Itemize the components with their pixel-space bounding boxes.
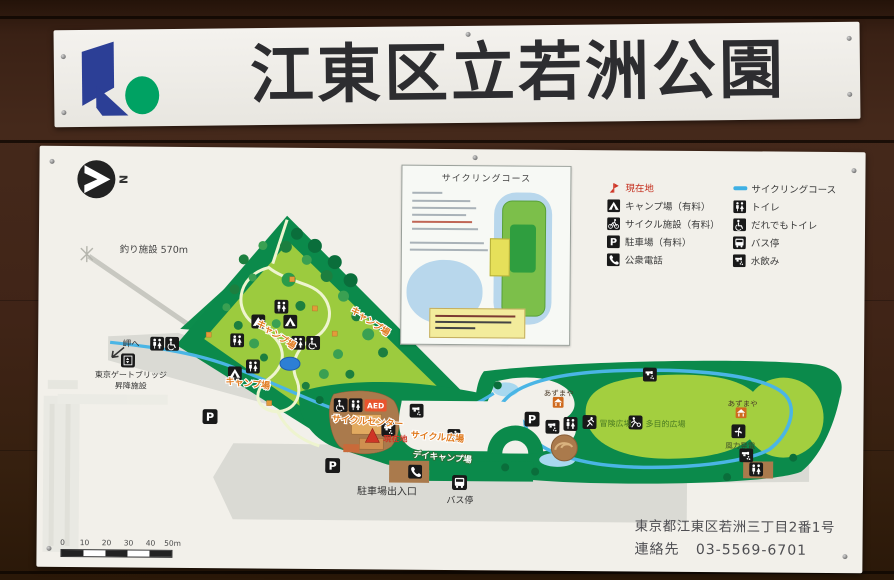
scale-tick: 0 [60, 538, 65, 547]
legend-label: 水飲み [751, 253, 780, 267]
current-location-label: 現在地 [383, 433, 407, 443]
azumaya-east-label: あずまや [728, 398, 758, 408]
campsite-icon [607, 199, 620, 212]
park-title: 江東区立若洲公園 [250, 29, 787, 119]
scale-tick: 30 [124, 538, 134, 547]
contact-line: 連絡先 03-5569-6701 [634, 538, 834, 560]
legend-row: サイクリングコース [733, 179, 859, 198]
scale-bar-segments [60, 549, 172, 558]
legend-row: 水飲み [733, 251, 859, 270]
water-fountain-icon [733, 254, 746, 267]
legend-row: トイレ [733, 197, 859, 216]
inset-cycling-map: サイクリングコース [400, 165, 571, 346]
screw [50, 159, 55, 164]
water-fountain-icon [643, 368, 657, 382]
screw [842, 554, 847, 559]
bus-stop-icon [733, 236, 746, 249]
accessible-toilet-icon [334, 398, 348, 412]
water-fountain-icon [410, 404, 424, 418]
scale-tick: 40 [146, 539, 156, 548]
inset-note [429, 308, 525, 339]
legend-label: 公衆電話 [625, 252, 663, 266]
accessible-toilet-icon [306, 336, 320, 350]
legend-label: 駐車場（有料） [625, 234, 692, 249]
water-fountain-icon [545, 420, 559, 434]
legend-label: バス停 [751, 235, 780, 249]
screw [473, 155, 478, 160]
parking-icon [202, 409, 217, 424]
gate-bridge-label-2: 昇降施設 [115, 380, 147, 390]
screw [466, 32, 471, 37]
inset-title: サイクリングコース [402, 171, 570, 185]
park-sign-photo: 江東区立若洲公園 [0, 0, 894, 580]
legend-label: 現在地 [625, 180, 654, 194]
legend-row: 駐車場（有料） [607, 232, 732, 251]
current-location-icon [607, 181, 620, 194]
cape-label: 岬へ [123, 339, 141, 349]
toilet-icon [733, 200, 746, 213]
parking-entrance-label: 駐車場出入口 [357, 484, 417, 497]
park-map-panel: AED 現在地 釣り施設 570m 岬へ 東京ゲートブリッジ 昇降施設 キャンプ… [36, 146, 865, 573]
toilet-icon [349, 398, 363, 412]
legend-row: バス停 [733, 233, 859, 252]
address-line: 東京都江東区若洲三丁目2番1号 [635, 514, 835, 536]
screw [847, 36, 852, 41]
scale-tick: 50m [164, 539, 181, 548]
screw [61, 54, 66, 59]
screw [851, 168, 856, 173]
screw [847, 92, 852, 97]
legend-label: だれでもトイレ [751, 217, 817, 232]
phone-number: 03-5569-6701 [696, 542, 807, 559]
koto-ward-logo [76, 39, 197, 118]
legend-row: サイクル施設（有料） [607, 214, 732, 233]
toilet-icon [246, 359, 260, 373]
spiral-mound [551, 435, 577, 461]
legend-label: トイレ [751, 199, 780, 213]
gazebo-icon [736, 407, 747, 418]
legend-label: キャンプ場（有料） [625, 198, 710, 213]
legend-row: 公衆電話 [607, 250, 732, 269]
parking-icon [607, 235, 620, 248]
toilet-icon [274, 300, 288, 314]
north-compass-icon: N [75, 156, 137, 202]
scale-tick: 10 [80, 538, 90, 547]
cycling-course-line [733, 186, 747, 190]
azumaya-west-label: あずまや [544, 388, 574, 398]
accessible-toilet-icon [733, 218, 746, 231]
legend-label: サイクリングコース [751, 181, 836, 196]
water-fountain-icon [739, 448, 753, 462]
phone-icon [408, 465, 422, 479]
legend-label: サイクル施設（有料） [625, 216, 720, 231]
elevator-icon [121, 353, 135, 367]
wind-turbine-icon [731, 424, 745, 438]
accessible-toilet-icon [165, 337, 179, 351]
bus-stop-label: バス停 [446, 494, 473, 506]
toilet-icon [749, 462, 763, 476]
campsite-icon [283, 315, 297, 329]
legend-row: 現在地 [607, 178, 732, 197]
gazebo-icon [553, 397, 564, 408]
scale-bar: 0 10 20 30 40 50m [60, 538, 190, 558]
multipurpose-plaza-label: 多目的広場 [645, 419, 685, 429]
scale-tick: 20 [102, 538, 112, 547]
legend-row: だれでもトイレ [733, 215, 859, 234]
toilet-icon [563, 417, 577, 431]
parking-icon [524, 412, 539, 427]
gate-bridge-silhouette [42, 380, 167, 553]
cycle-facility-icon [607, 217, 620, 230]
fishing-label: 釣り施設 570m [120, 243, 189, 256]
park-title-sign: 江東区立若洲公園 [54, 22, 861, 127]
bus-stop-icon [452, 475, 467, 490]
adventure-plaza-label: 冒険広場 [599, 418, 631, 428]
adventure-plaza-icon [582, 415, 596, 429]
gate-bridge-label-1: 東京ゲートブリッジ [95, 369, 167, 380]
parking-icon [325, 458, 340, 473]
legend-row: キャンプ場（有料） [607, 196, 732, 215]
wind-power-label: 風力発電 [725, 440, 756, 450]
contact-label: 連絡先 [634, 541, 679, 557]
pond [280, 357, 300, 370]
toilet-icon [230, 333, 244, 347]
screw [61, 110, 66, 115]
phone-icon [607, 253, 620, 266]
screw [46, 546, 51, 551]
wood-seam [0, 140, 894, 143]
aed-label: AED [367, 401, 384, 410]
address-block: 東京都江東区若洲三丁目2番1号 連絡先 03-5569-6701 [634, 514, 835, 560]
north-label: N [116, 175, 129, 184]
toilet-icon [150, 337, 164, 351]
wood-seam [0, 16, 894, 19]
